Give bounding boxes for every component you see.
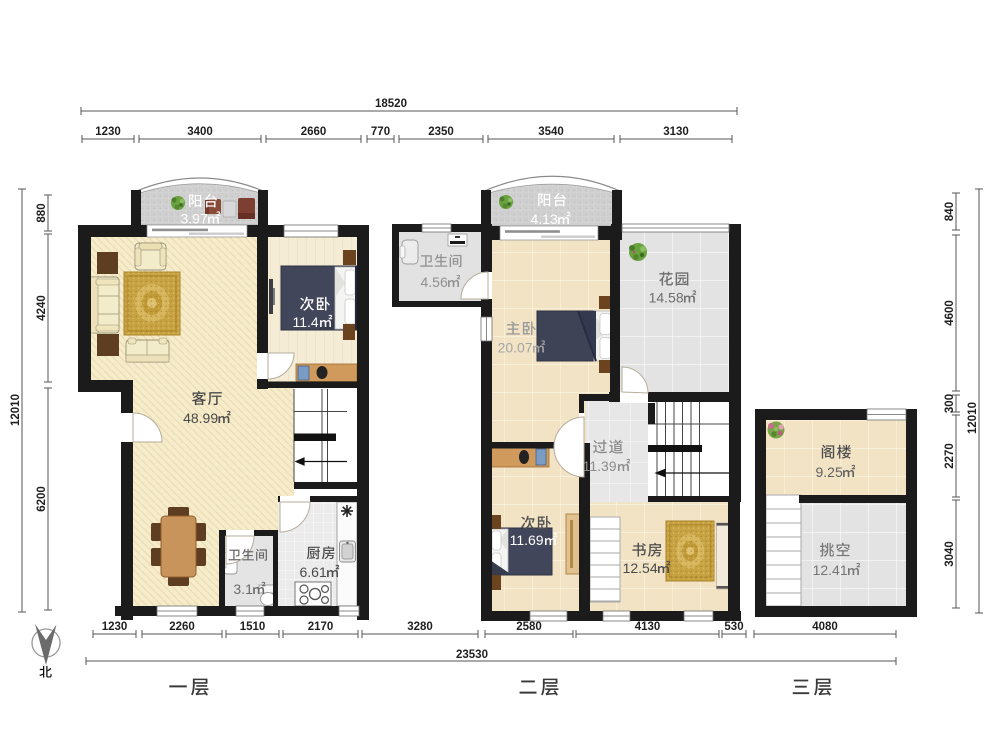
svg-text:530: 530 <box>724 621 743 633</box>
svg-text:14.58: 14.58 <box>649 289 684 305</box>
svg-text:11.4: 11.4 <box>293 314 319 330</box>
svg-text:12.41: 12.41 <box>813 562 848 578</box>
svg-text:1230: 1230 <box>102 621 128 633</box>
svg-text:6200: 6200 <box>36 486 48 512</box>
svg-text:12010: 12010 <box>967 402 979 434</box>
svg-text:3540: 3540 <box>538 126 564 138</box>
svg-text:3400: 3400 <box>187 126 213 138</box>
svg-text:3040: 3040 <box>944 541 956 567</box>
svg-text:1510: 1510 <box>240 621 266 633</box>
svg-text:23530: 23530 <box>456 649 488 661</box>
svg-text:9.25: 9.25 <box>816 464 843 480</box>
svg-text:6.61: 6.61 <box>300 564 327 580</box>
svg-text:3.97: 3.97 <box>181 210 208 226</box>
svg-text:4080: 4080 <box>812 621 838 633</box>
svg-text:2660: 2660 <box>301 126 327 138</box>
svg-text:12.54: 12.54 <box>623 560 658 576</box>
svg-text:4130: 4130 <box>635 621 661 633</box>
svg-text:3280: 3280 <box>407 621 433 633</box>
svg-text:48.99: 48.99 <box>183 410 218 426</box>
svg-text:770: 770 <box>371 126 390 138</box>
svg-text:4240: 4240 <box>36 295 48 321</box>
svg-text:880: 880 <box>36 203 48 222</box>
svg-text:2170: 2170 <box>308 621 334 633</box>
svg-text:840: 840 <box>944 202 956 221</box>
svg-text:2350: 2350 <box>428 126 454 138</box>
svg-text:3.1: 3.1 <box>233 581 253 597</box>
svg-text:3130: 3130 <box>663 126 689 138</box>
svg-text:11.69: 11.69 <box>510 532 544 548</box>
svg-text:2270: 2270 <box>944 443 956 469</box>
svg-text:2580: 2580 <box>516 621 542 633</box>
svg-text:2260: 2260 <box>169 621 195 633</box>
svg-text:4600: 4600 <box>944 300 956 326</box>
svg-text:4.56: 4.56 <box>421 274 448 290</box>
svg-text:12010: 12010 <box>10 394 22 426</box>
svg-text:300: 300 <box>944 394 956 413</box>
svg-text:11.39: 11.39 <box>583 458 617 474</box>
svg-text:4.13: 4.13 <box>531 211 558 227</box>
svg-text:20.07: 20.07 <box>498 339 533 355</box>
svg-text:18520: 18520 <box>375 98 407 110</box>
svg-text:1230: 1230 <box>95 126 121 138</box>
